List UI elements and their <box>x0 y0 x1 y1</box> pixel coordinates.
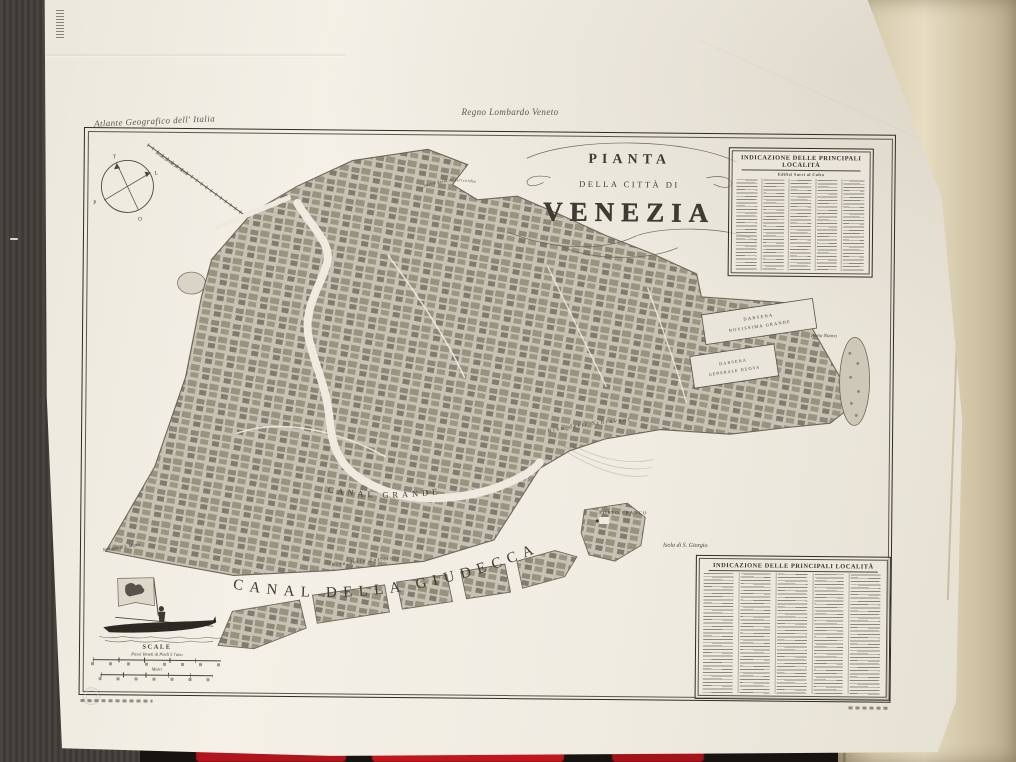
legend-top-columns <box>734 178 867 272</box>
compass-letter-s: O <box>138 217 142 223</box>
surface-speck <box>10 238 18 240</box>
engraver-imprint-right <box>848 706 888 709</box>
region-header: Regno Lombardo Veneto <box>425 107 595 117</box>
legend-column <box>841 179 867 272</box>
legend-column <box>848 573 884 695</box>
legend-column <box>787 179 813 272</box>
legend-column <box>737 572 773 694</box>
title-line2: DELLA CITTÀ DI <box>579 179 680 190</box>
legend-column <box>734 178 759 271</box>
map-sheet: Atlante Geografico dell' Italia Regno Lo… <box>0 0 1016 762</box>
engraved-plate: Strada ferrata per Mestre T L O P <box>79 127 896 703</box>
railway-label: Strada ferrata per Mestre <box>155 151 190 177</box>
scale-block: SCALE Passi Veneti di Piedi 5 l'uno Metr… <box>87 643 227 681</box>
legend-top-inner: INDICAZIONE DELLE PRINCIPALI LOCALITÀ Ed… <box>730 150 871 275</box>
legend-column <box>701 572 736 694</box>
legend-bottom: INDICAZIONE DELLE PRINCIPALI LOCALITÀ <box>695 555 891 701</box>
water-lines <box>99 636 223 643</box>
legend-column <box>774 572 810 694</box>
scale-bar-metri <box>101 672 213 678</box>
porto-franco-label: PORTO FRANCO <box>599 511 647 516</box>
legend-column <box>814 179 840 272</box>
photo-of-antique-map: Atlante Geografico dell' Italia Regno Lo… <box>0 0 1016 762</box>
legend-column <box>811 573 847 695</box>
legend-column <box>760 178 786 271</box>
legend-bottom-inner: INDICAZIONE DELLE PRINCIPALI LOCALITÀ <box>697 558 888 699</box>
compass-letter-e: L <box>155 171 159 177</box>
title-line1: PIANTA <box>588 152 671 168</box>
gondola-vignette <box>95 575 226 651</box>
collection-stamp <box>56 8 64 38</box>
compass-letter-w: P <box>93 200 96 206</box>
isola-s-giorgio-label: Isola di S. Giorgio <box>662 543 708 549</box>
scale-heading: SCALE <box>87 643 227 651</box>
title-line3: VENEZIA <box>543 196 715 228</box>
vignette-drawing <box>95 575 226 646</box>
paper-crease <box>46 56 346 57</box>
railway-causeway: Strada ferrata per Mestre <box>147 145 260 226</box>
embossed-blind-stamp <box>82 687 100 705</box>
porto-nuovo-label: Porto Nuovo <box>810 334 837 339</box>
compass-letter-n: T <box>113 154 117 160</box>
legend-top-header: INDICAZIONE DELLE PRINCIPALI LOCALITÀ <box>735 154 867 169</box>
sant-elena-island <box>839 337 870 425</box>
gondolier <box>158 612 165 622</box>
legend-top: INDICAZIONE DELLE PRINCIPALI LOCALITÀ Ed… <box>728 147 874 277</box>
legend-top-subheader: Edifizi Sacri al Culto <box>735 171 867 177</box>
compass-rose: T L O P <box>93 154 159 223</box>
legend-bottom-columns <box>701 572 884 695</box>
